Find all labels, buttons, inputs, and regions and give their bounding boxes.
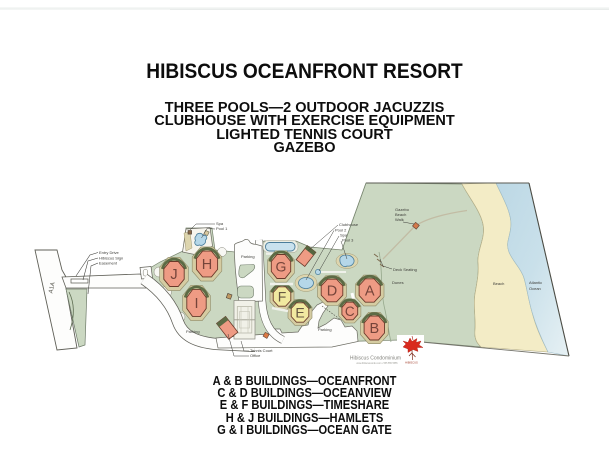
svg-text:Entry Drive: Entry Drive (99, 250, 120, 255)
svg-text:Office: Office (250, 353, 261, 358)
svg-text:J: J (170, 267, 177, 283)
svg-text:Walk: Walk (395, 217, 404, 222)
svg-text:Parking: Parking (318, 327, 332, 332)
svg-text:C: C (345, 304, 355, 319)
svg-text:Parking: Parking (241, 254, 255, 259)
svg-text:Atlantic: Atlantic (529, 280, 542, 285)
svg-text:A: A (365, 284, 375, 300)
svg-text:Pool 1: Pool 1 (216, 226, 228, 231)
svg-text:F: F (278, 289, 287, 305)
svg-text:Deck Seating: Deck Seating (393, 267, 417, 272)
svg-text:Pool 3: Pool 3 (342, 238, 354, 243)
svg-text:G: G (276, 259, 287, 275)
svg-text:Clubhouse: Clubhouse (339, 222, 359, 227)
svg-text:I: I (194, 296, 198, 312)
svg-text:D: D (327, 284, 337, 300)
svg-text:Parking: Parking (186, 329, 200, 334)
svg-text:HIBISCUS: HIBISCUS (405, 361, 418, 365)
svg-text:Beach: Beach (493, 281, 504, 286)
svg-text:Ocean: Ocean (529, 286, 541, 291)
svg-text:Hibiscus Condominium: Hibiscus Condominium (350, 356, 401, 362)
svg-text:E: E (295, 305, 304, 321)
svg-text:Dunes: Dunes (392, 280, 404, 285)
svg-text:www.hibiscuscondo.com • 555 55: www.hibiscuscondo.com • 555 555 5555 (356, 363, 398, 365)
svg-text:H: H (202, 257, 212, 273)
svg-text:B: B (369, 321, 379, 337)
svg-text:Easement: Easement (99, 261, 118, 266)
